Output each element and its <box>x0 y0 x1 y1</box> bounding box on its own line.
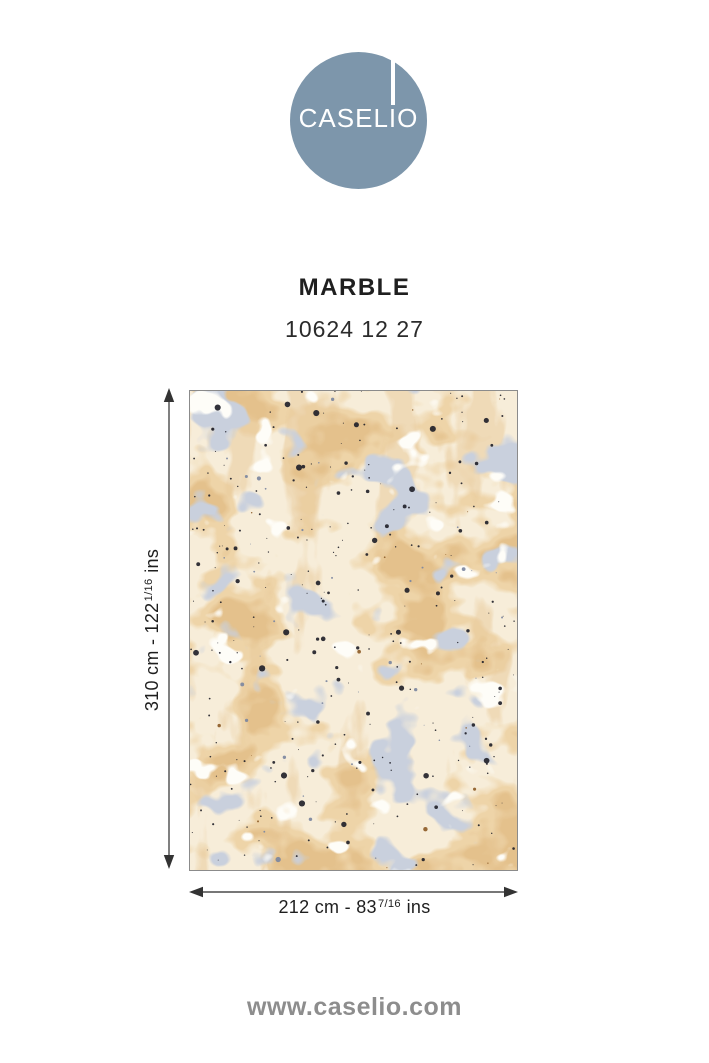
speckle-dot <box>491 833 492 834</box>
speckle-dot <box>274 781 276 783</box>
speckle-dot <box>421 663 422 664</box>
speckle-dot <box>196 527 198 529</box>
speckle-dot <box>223 557 225 559</box>
speckle-dot <box>333 552 334 553</box>
speckle-dot <box>351 763 353 765</box>
speckle-dot <box>461 482 463 484</box>
speckle-dot <box>396 666 398 668</box>
speckle-dot <box>416 793 418 795</box>
height-value: 310 cm - 122 <box>142 603 162 712</box>
speckle-dot <box>369 724 370 725</box>
speckle-dot <box>351 489 353 491</box>
speckle-dot <box>406 803 408 805</box>
speckle-dot <box>270 767 272 769</box>
speckle-dot <box>396 681 398 683</box>
speckle-dot <box>266 538 267 539</box>
speckle-dot <box>297 537 299 539</box>
speckle-dot <box>271 817 273 819</box>
speckle-dot <box>352 475 354 477</box>
product-reference: 10624 12 27 <box>0 316 709 344</box>
speckle-dot <box>405 588 410 593</box>
speckle-dot <box>203 529 205 531</box>
speckle-dot <box>389 534 391 536</box>
speckle-dot <box>200 809 202 811</box>
speckle-dot <box>344 461 347 464</box>
speckle-dot <box>409 486 415 492</box>
speckle-dot <box>409 580 411 582</box>
vertical-dimension-arrow <box>162 388 176 869</box>
speckle-dot <box>210 756 212 758</box>
speckle-dot <box>451 555 452 556</box>
speckle-dot <box>239 820 240 821</box>
speckle-dot <box>209 698 211 700</box>
speckle-dot <box>343 423 344 424</box>
speckle-dot <box>449 472 451 474</box>
website-text: www.caselio.com <box>0 993 709 1022</box>
speckle-dot <box>318 462 320 464</box>
speckle-dot <box>504 625 506 627</box>
speckle-dot <box>450 574 453 577</box>
speckle-dot <box>408 507 410 509</box>
speckle-dot <box>439 739 441 741</box>
speckle-dot <box>436 591 440 595</box>
speckle-dot <box>469 767 470 768</box>
speckle-dot <box>458 529 462 533</box>
speckle-dot <box>321 598 322 599</box>
arrowhead-down-icon <box>164 855 174 869</box>
speckle-dot <box>450 393 451 394</box>
speckle-dot <box>382 757 383 758</box>
speckle-dot <box>366 490 370 494</box>
speckle-dot <box>397 815 399 817</box>
speckle-dot <box>286 659 288 661</box>
speckle-dot <box>219 652 221 654</box>
speckle-dot <box>464 732 466 734</box>
speckle-dot <box>330 695 332 697</box>
speckle-dot <box>344 734 346 736</box>
speckle-dot <box>404 606 405 607</box>
width-unit: ins <box>407 897 431 917</box>
speckle-dot <box>390 633 392 635</box>
speckle-dot <box>347 523 349 525</box>
speckle-dot <box>208 494 210 496</box>
speckle-dot <box>253 571 255 573</box>
speckle-dot <box>224 525 225 526</box>
speckle-dot <box>494 696 495 697</box>
speckle-dot <box>258 840 259 841</box>
speckle-dot <box>473 864 474 865</box>
speckle-dot <box>281 772 287 778</box>
speckle-dot <box>226 457 228 459</box>
speckle-dot <box>409 661 411 663</box>
speckle-dot <box>473 506 475 508</box>
speckle-dot <box>356 767 357 768</box>
speckle-dot <box>190 649 192 651</box>
speckle-dot <box>400 642 402 644</box>
speckle-dot <box>385 524 389 528</box>
speckle-dot <box>392 640 394 642</box>
speckle-dot <box>357 589 359 591</box>
speckle-dot <box>475 678 476 679</box>
speckle-dot <box>259 513 261 515</box>
speckle-dot <box>303 795 304 796</box>
speckle-dot <box>424 725 425 726</box>
speckle-dot <box>461 395 463 397</box>
speckle-dot <box>273 620 275 622</box>
speckle-dot <box>356 646 359 649</box>
speckle-dot <box>422 858 425 861</box>
speckle-dot <box>219 546 220 547</box>
speckle-dot <box>230 478 232 480</box>
speckle-dot <box>358 761 361 764</box>
speckle-dot <box>258 562 259 563</box>
speckle-dot <box>498 687 502 691</box>
speckle-dot <box>348 683 349 684</box>
speckle-dot <box>487 863 488 864</box>
speckle-dot <box>245 475 248 478</box>
speckle-dot <box>311 769 314 772</box>
speckle-dot <box>283 629 289 635</box>
speckle-dot <box>234 546 238 550</box>
speckle-dot <box>309 818 312 821</box>
speckle-dot <box>229 661 231 663</box>
speckle-dot <box>372 788 375 791</box>
speckle-dot <box>462 421 463 422</box>
height-fraction: 1/16 <box>143 578 155 601</box>
speckle-dot <box>256 490 258 492</box>
speckle-dot <box>260 810 261 811</box>
speckle-dot <box>215 451 216 452</box>
speckle-dot <box>389 762 391 764</box>
speckle-dot <box>193 458 195 460</box>
speckle-dot <box>226 547 229 550</box>
speckle-dot <box>322 600 325 603</box>
speckle-dot <box>260 815 262 817</box>
speckle-dot <box>301 529 303 531</box>
speckle-dot <box>253 616 255 618</box>
speckle-dot <box>246 826 247 827</box>
speckle-dot <box>393 509 394 510</box>
speckle-dot <box>306 487 307 488</box>
speckle-dot <box>233 640 234 641</box>
speckle-dot <box>498 501 499 502</box>
speckle-dot <box>299 800 305 806</box>
speckle-dot <box>298 749 299 750</box>
speckle-dot <box>265 587 266 588</box>
speckle-dot <box>331 577 333 579</box>
speckle-dot <box>307 776 308 777</box>
speckle-dot <box>316 637 319 640</box>
speckle-dot <box>272 761 275 764</box>
speckle-dot <box>292 738 294 740</box>
speckle-dot <box>396 630 401 635</box>
speckle-dot <box>461 412 462 413</box>
speckle-dot <box>311 529 312 530</box>
speckle-dot <box>212 428 214 430</box>
speckle-dot <box>384 556 386 558</box>
speckle-dot <box>335 821 336 822</box>
caselio-logo: CASELIO <box>290 52 427 189</box>
speckle-dot <box>499 692 500 693</box>
speckle-dot <box>403 505 407 509</box>
speckle-dot <box>236 759 237 760</box>
speckle-dot <box>493 756 494 757</box>
speckle-dot <box>492 601 494 603</box>
speckle-dot <box>462 810 463 811</box>
speckle-dot <box>502 803 503 804</box>
speckle-dot <box>346 841 350 845</box>
speckle-dot <box>259 665 265 671</box>
speckle-dot <box>208 715 210 717</box>
speckle-dot <box>341 443 342 444</box>
speckle-dot <box>346 813 348 815</box>
speckle-dot <box>473 788 476 791</box>
speckle-dot <box>323 413 324 414</box>
speckle-dot <box>325 680 327 682</box>
speckle-dot <box>245 719 248 722</box>
speckle-dot <box>414 688 417 691</box>
speckle-dot <box>224 770 226 772</box>
speckle-dot <box>335 555 336 556</box>
speckle-dot <box>484 758 490 764</box>
speckle-dot <box>308 839 310 841</box>
speckle-dot <box>436 605 438 607</box>
logo-i-line <box>391 57 395 105</box>
speckle-dot <box>212 590 214 592</box>
speckle-dot <box>215 567 216 568</box>
speckle-dot <box>422 567 424 569</box>
speckle-dot <box>418 545 420 547</box>
speckle-dot <box>192 832 193 833</box>
speckle-dot <box>454 600 455 601</box>
speckle-dot <box>456 398 457 399</box>
speckle-dot <box>482 677 483 678</box>
speckle-dot <box>368 648 370 650</box>
speckle-dot <box>471 570 472 571</box>
speckle-dot <box>361 391 362 392</box>
speckle-dot <box>296 855 298 857</box>
speckle-dot <box>211 649 212 650</box>
speckle-dot <box>466 629 469 632</box>
speckle-dot <box>372 538 377 543</box>
speckle-dot <box>370 527 372 529</box>
speckle-dot <box>415 864 417 866</box>
speckle-dot <box>341 822 346 827</box>
speckle-dot <box>302 584 303 585</box>
speckle-dot <box>316 720 320 724</box>
speckle-dot <box>263 831 265 833</box>
speckle-dot <box>359 440 361 442</box>
speckle-dot <box>217 552 218 553</box>
speckle-dot <box>434 805 438 809</box>
speckle-dot <box>469 746 470 747</box>
speckle-dot <box>472 717 473 718</box>
speckle-dot <box>499 398 500 399</box>
logo-text: CASELIO <box>290 105 427 131</box>
speckle-dot <box>490 444 493 447</box>
speckle-dot <box>430 426 436 432</box>
speckle-dot <box>324 592 325 593</box>
speckle-dot <box>501 616 503 618</box>
speckle-dot <box>500 395 502 397</box>
speckle-dot <box>445 554 446 555</box>
speckle-dot <box>237 652 238 653</box>
speckle-dot <box>391 770 392 771</box>
speckle-dot <box>365 553 368 556</box>
speckle-dot <box>386 867 387 868</box>
speckle-dot <box>196 562 200 566</box>
speckle-dot <box>298 629 299 630</box>
speckle-dot <box>465 727 467 729</box>
speckle-dot <box>337 678 341 682</box>
speckle-dot <box>342 540 343 541</box>
speckle-dot <box>369 634 370 635</box>
arrowhead-up-icon <box>164 388 174 402</box>
speckle-dot <box>513 674 514 675</box>
speckle-dot <box>501 415 503 417</box>
speckle-dot <box>316 801 317 802</box>
speckle-dot <box>251 512 252 513</box>
speckle-dot <box>459 460 462 463</box>
speckle-dot <box>432 723 433 724</box>
speckle-dot <box>217 642 218 643</box>
speckle-dot <box>354 422 359 427</box>
speckle-dot <box>364 470 365 471</box>
speckle-dot <box>326 847 328 849</box>
speckle-dot <box>265 488 267 490</box>
speckle-dot <box>504 398 506 400</box>
speckle-dot <box>330 526 331 527</box>
speckle-dot <box>222 545 223 546</box>
speckle-dot <box>335 743 337 745</box>
speckle-dot <box>311 463 312 464</box>
speckle-dot <box>270 411 271 412</box>
speckle-dot <box>380 483 381 484</box>
speckle-dot <box>257 820 259 822</box>
speckle-dot <box>251 755 252 756</box>
speckle-dot <box>330 467 331 468</box>
speckle-dot <box>220 601 222 603</box>
speckle-dot <box>358 692 359 693</box>
speckle-dot <box>250 544 251 545</box>
speckle-dot <box>253 626 254 627</box>
speckle-dot <box>423 827 427 831</box>
speckle-dot <box>331 398 334 401</box>
speckle-dot <box>512 847 515 850</box>
speckle-dot <box>435 729 437 731</box>
speckle-dot <box>457 526 459 528</box>
speckle-dot <box>193 650 199 656</box>
speckle-dot <box>485 738 487 740</box>
speckle-dot <box>508 649 509 650</box>
speckle-dot <box>432 775 434 777</box>
speckle-dot <box>244 760 246 762</box>
speckle-dot <box>286 526 290 530</box>
speckle-dot <box>273 426 275 428</box>
speckle-dot <box>237 486 238 487</box>
speckle-dot <box>207 850 208 851</box>
speckle-dot <box>224 465 225 466</box>
speckle-dot <box>462 567 466 571</box>
speckle-dot <box>316 581 321 586</box>
speckle-dot <box>325 604 327 606</box>
speckle-dot <box>513 620 514 621</box>
product-name: MARBLE <box>0 276 709 300</box>
speckle-dot <box>327 592 330 595</box>
speckle-dot <box>283 457 285 459</box>
speckle-dot <box>411 544 413 546</box>
speckle-dot <box>484 418 489 423</box>
speckle-dot <box>322 754 324 756</box>
speckle-dot <box>458 760 459 761</box>
speckle-dot <box>363 424 365 426</box>
speckle-dot <box>368 477 370 479</box>
speckle-dot <box>240 682 244 686</box>
speckle-dot <box>475 462 479 466</box>
speckle-dot <box>478 824 480 826</box>
speckle-dot <box>211 620 214 623</box>
speckle-dot <box>441 587 443 589</box>
speckle-dot <box>389 661 392 664</box>
speckle-dot <box>308 571 309 572</box>
speckle-dot <box>436 502 437 503</box>
speckle-dot <box>457 642 458 643</box>
speckle-dot <box>307 593 308 594</box>
speckle-dot <box>489 743 492 746</box>
speckle-dot <box>244 854 245 855</box>
speckle-dot <box>410 689 411 690</box>
speckle-dot <box>396 427 398 429</box>
speckle-dot <box>498 701 502 705</box>
speckle-dot <box>231 788 233 790</box>
speckle-dot <box>218 860 219 861</box>
speckle-dot <box>429 512 430 513</box>
speckle-dot <box>306 539 307 540</box>
speckle-dot <box>399 686 404 691</box>
speckle-dot <box>283 756 286 759</box>
speckle-dot <box>207 472 208 473</box>
speckle-dot <box>297 721 298 722</box>
width-value: 212 cm - 83 <box>278 897 376 917</box>
spec-sheet: CASELIO MARBLE 10624 12 27 310 cm - 1221… <box>0 0 709 1063</box>
speckle-dot <box>395 546 396 547</box>
speckle-dot <box>260 656 261 657</box>
speckle-dot <box>373 759 375 761</box>
width-fraction: 7/16 <box>378 898 401 910</box>
speckle-dot <box>276 857 281 862</box>
speckle-dot <box>292 479 294 481</box>
speckle-dot <box>373 823 374 824</box>
arrowhead-left-icon <box>189 887 203 897</box>
speckle-dot <box>321 637 326 642</box>
speckle-dot <box>485 521 489 525</box>
speckle-dot <box>357 650 361 654</box>
speckle-dot <box>322 702 324 704</box>
speckle-dot <box>375 857 377 859</box>
speckle-dot <box>296 465 302 471</box>
speckle-dot <box>338 547 340 549</box>
speckle-dot <box>257 476 261 480</box>
speckle-dot <box>285 402 291 408</box>
width-dimension-label: 212 cm - 837/16ins <box>0 898 709 916</box>
speckle-dot <box>192 529 193 530</box>
speckle-dot <box>337 491 341 495</box>
speckle-dot <box>482 661 484 663</box>
speckle-dot <box>239 530 241 532</box>
speckle-dot <box>297 454 299 456</box>
speckle-dot <box>302 465 306 469</box>
speckle-dot <box>216 776 217 777</box>
